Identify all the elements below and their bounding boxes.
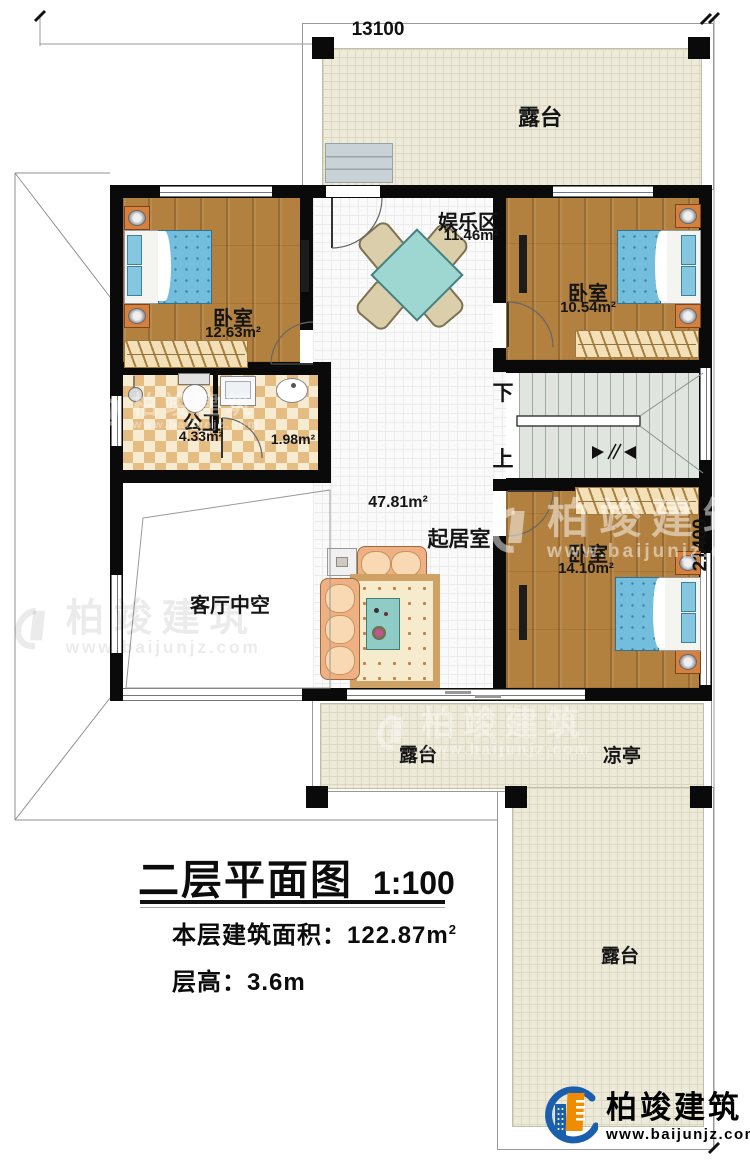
plan-scale: 1:100 bbox=[373, 865, 455, 902]
void-floor bbox=[122, 483, 312, 688]
bed-sheet-fold bbox=[655, 231, 667, 301]
sofa-cushion bbox=[325, 615, 355, 644]
sofa-cushion bbox=[325, 584, 355, 613]
window bbox=[111, 575, 122, 653]
sofa-cushion bbox=[325, 646, 355, 675]
pillow bbox=[681, 613, 696, 643]
sink bbox=[276, 378, 308, 403]
bed-sheet-fold bbox=[158, 231, 171, 301]
brand-logo-icon bbox=[540, 1084, 598, 1150]
column bbox=[688, 37, 710, 59]
stairs-treads bbox=[519, 373, 699, 478]
tv bbox=[519, 585, 527, 640]
bathroom-area2: 1.98m² bbox=[271, 431, 315, 447]
column bbox=[306, 786, 328, 808]
bathroom-area: 4.33m² bbox=[179, 428, 223, 444]
nightstand bbox=[124, 304, 150, 328]
floor-area-label: 本层建筑面积： bbox=[172, 922, 347, 949]
bedroom-tl-area: 12.63m² bbox=[205, 324, 261, 341]
brand-url: www.baijunjz.com bbox=[606, 1126, 750, 1143]
wardrobe bbox=[575, 330, 699, 358]
title-underline-thin bbox=[140, 907, 445, 908]
column bbox=[690, 786, 712, 808]
door-opening bbox=[326, 186, 380, 197]
floor-area-line: 本层建筑面积：122.87m2 bbox=[172, 915, 457, 950]
terrace-right-label: 露台 bbox=[601, 941, 639, 968]
window bbox=[160, 186, 272, 197]
coffee-table bbox=[366, 598, 400, 650]
nightstand bbox=[675, 304, 701, 328]
nightstand bbox=[675, 650, 701, 674]
bed-sheet-fold bbox=[653, 578, 665, 648]
window bbox=[700, 368, 711, 460]
title-underline bbox=[140, 900, 445, 904]
pillow bbox=[681, 266, 696, 296]
column bbox=[505, 786, 527, 808]
plan-title: 二层平面图 bbox=[138, 846, 353, 906]
door-opening bbox=[493, 303, 506, 348]
stairs-down-label: 下 bbox=[493, 377, 514, 407]
dimension-right: 21400 bbox=[690, 519, 712, 572]
terrace-bottom-label: 露台 bbox=[399, 740, 437, 767]
floor-height-line: 层高：3.6m bbox=[172, 962, 306, 997]
floor-area-value: 122.87m bbox=[347, 922, 449, 949]
void-railing bbox=[123, 688, 302, 701]
title-block: 二层平面图 1:100 bbox=[138, 846, 455, 906]
bedroom-tr-area: 10.54m² bbox=[560, 299, 616, 316]
pillow bbox=[681, 582, 696, 612]
table-decor bbox=[374, 608, 379, 613]
brand-name: 柏竣建筑 bbox=[606, 1091, 750, 1125]
brand-logo: 柏竣建筑 www.baijunjz.com bbox=[540, 1084, 750, 1150]
nightstand bbox=[124, 206, 150, 230]
tv bbox=[301, 240, 309, 292]
door-opening bbox=[300, 330, 313, 364]
bedroom-br-area: 14.10m² bbox=[558, 560, 614, 577]
shower-head bbox=[128, 387, 143, 402]
side-table bbox=[327, 548, 357, 576]
table-decor bbox=[384, 612, 388, 616]
watermark-logo-icon bbox=[16, 603, 58, 655]
dimension-top: 13100 bbox=[352, 19, 405, 41]
pavilion-label: 凉亭 bbox=[603, 741, 641, 768]
living-area: 47.81m² bbox=[368, 494, 428, 512]
terrace-top-label: 露台 bbox=[518, 100, 562, 132]
sliding-door-panel bbox=[475, 695, 501, 698]
window bbox=[111, 396, 122, 446]
terrace-planter bbox=[325, 143, 393, 183]
pillow bbox=[681, 235, 696, 265]
window bbox=[553, 186, 653, 197]
door-opening bbox=[493, 491, 506, 536]
entertainment-area: 11.46m² bbox=[443, 227, 498, 244]
wall bbox=[110, 470, 331, 483]
wardrobe bbox=[124, 340, 248, 368]
pillow bbox=[127, 235, 142, 265]
floor-height-value: 3.6m bbox=[247, 969, 306, 996]
living-label: 起居室 bbox=[428, 523, 491, 553]
window bbox=[700, 553, 711, 685]
wall bbox=[506, 360, 712, 373]
floor-height-label: 层高： bbox=[172, 969, 247, 996]
stairs-up-label: 上 bbox=[493, 443, 514, 473]
wardrobe bbox=[575, 487, 699, 515]
floor-area-sup: 2 bbox=[449, 922, 457, 937]
washbasin bbox=[220, 376, 256, 406]
tv bbox=[519, 235, 527, 293]
sliding-door-panel bbox=[445, 691, 471, 694]
void-label: 客厅中空 bbox=[190, 589, 270, 618]
terrace-bottom-floor bbox=[320, 703, 704, 789]
pillow bbox=[127, 266, 142, 296]
wall bbox=[318, 362, 331, 483]
floor-plan-canvas: 露台 卧室 12.63m² 娱乐区 11.46m² 卧室 10.54m² 公卫 … bbox=[0, 0, 750, 1160]
column bbox=[312, 37, 334, 59]
flower-decor bbox=[372, 626, 386, 640]
nightstand bbox=[675, 204, 701, 228]
